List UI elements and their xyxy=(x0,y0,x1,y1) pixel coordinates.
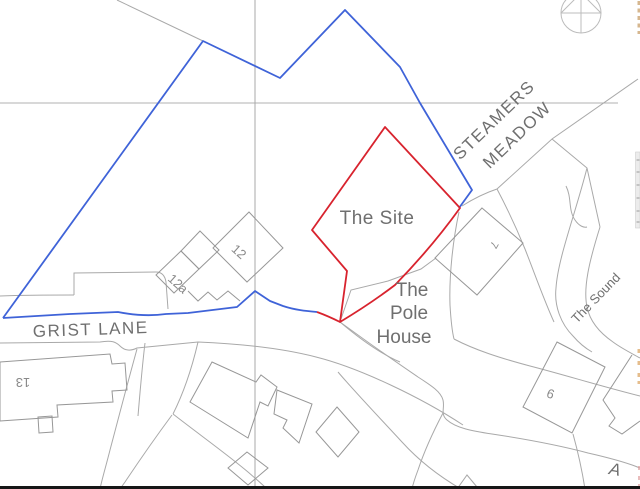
label-house-13: 13 xyxy=(16,375,30,390)
branch-road-west-edge xyxy=(100,349,137,489)
field-enclosure xyxy=(74,272,168,309)
building-southwest-house xyxy=(190,362,277,438)
label-the-sound: The Sound xyxy=(568,270,623,326)
right-edge-cropped-content xyxy=(636,1,640,487)
building-7 xyxy=(435,208,523,295)
site-boundary-spur xyxy=(317,312,340,322)
junction-inner-edge xyxy=(412,413,443,489)
edge-panel-strip xyxy=(636,152,640,228)
label-house-12: 12 xyxy=(229,241,250,262)
label-house-7: 7 xyxy=(487,239,500,250)
driveway-edge-west xyxy=(138,343,145,416)
label-house-6: 6 xyxy=(545,385,557,402)
label-pole-house-line1: The xyxy=(396,280,429,301)
map-labels: The Site The Pole House GRIST LANE STEAM… xyxy=(16,77,623,480)
grist-lane-south-edge xyxy=(0,341,463,425)
the-sound-road-west-edge xyxy=(556,168,592,352)
building-small-diamond xyxy=(228,452,268,485)
label-the-site: The Site xyxy=(340,208,415,229)
building-row-b xyxy=(274,390,312,443)
steamers-meadow-plot-edge xyxy=(552,139,600,227)
building-12a xyxy=(181,231,219,269)
branch-road-east-edge xyxy=(173,414,267,489)
branch-road-curve xyxy=(120,415,172,489)
map-canvas: The Site The Pole House GRIST LANE STEAM… xyxy=(0,0,640,489)
north-compass-icon xyxy=(561,0,601,33)
base-map-roads-and-boundaries xyxy=(0,0,640,489)
label-house-12a: 12a xyxy=(165,271,192,297)
boundary-top-left xyxy=(117,0,203,41)
driveway-edge-east xyxy=(173,342,198,414)
plot-7-east-fence xyxy=(497,189,554,322)
label-grist-lane: GRIST LANE xyxy=(32,318,148,341)
label-road-a: A xyxy=(607,459,622,480)
grist-lane-north-edge xyxy=(0,295,74,296)
building-row-c xyxy=(316,407,359,457)
building-porch-steps xyxy=(188,291,240,301)
fence-below-house-6 xyxy=(573,434,585,489)
building-6 xyxy=(523,342,605,433)
label-pole-house-line3: House xyxy=(377,327,432,348)
building-12 xyxy=(213,212,283,282)
map-grid xyxy=(0,0,618,489)
main-road-north-edge xyxy=(454,339,640,396)
label-pole-house-line2: Pole xyxy=(390,303,428,324)
site-location-plan: The Site The Pole House GRIST LANE STEAM… xyxy=(0,0,640,489)
